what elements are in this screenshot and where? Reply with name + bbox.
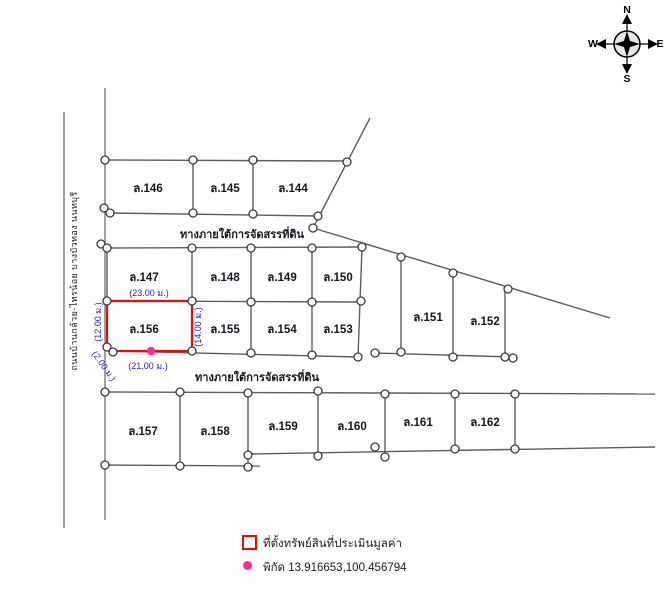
plot-label-150: ล.150 — [323, 269, 352, 287]
plot-label-154: ล.154 — [267, 321, 296, 339]
left-road-label: ถนนบ้านกล้วย-ไทรน้อย บางบัวทอง นนทบุรี — [67, 191, 81, 370]
dimension-left: (12.00 ม.) — [91, 302, 105, 341]
compass-east-label: E — [656, 38, 663, 50]
plot-label-161: ล.161 — [403, 414, 432, 432]
legend-subject-swatch — [242, 535, 257, 550]
plot-label-157: ล.157 — [128, 423, 157, 441]
plot-label-146: ล.146 — [133, 180, 162, 198]
dimension-right: (14.00 ม.) — [191, 307, 205, 346]
legend-coordinate-line: พิกัด 13.916653,100.456794 — [263, 559, 407, 577]
plot-label-148: ล.148 — [210, 269, 239, 287]
compass-rose-icon — [596, 14, 658, 74]
plot-label-159: ล.159 — [268, 418, 297, 436]
plot-label-151: ล.151 — [413, 309, 442, 327]
plot-label-144: ล.144 — [278, 180, 307, 198]
diagonal-boundary-upper — [313, 118, 370, 228]
plot-label-156-subject: ล.156 — [129, 321, 158, 339]
plot-label-155: ล.155 — [210, 321, 239, 339]
plot-label-145: ล.145 — [210, 180, 239, 198]
plot-label-147: ล.147 — [129, 269, 158, 287]
compass-south-label: S — [623, 73, 630, 85]
upper-road-label: ทางภายใต้การจัดสรรที่ดิน — [180, 225, 304, 243]
plot-label-160: ล.160 — [337, 418, 366, 436]
lower-road-label: ทางภายใต้การจัดสรรที่ดิน — [195, 368, 319, 386]
diagonal-boundary-lower — [313, 228, 610, 318]
plot-label-149: ล.149 — [267, 269, 296, 287]
coordinate-marker — [147, 347, 155, 355]
survey-map: ล.146 ล.145 ล.144 ล.147 ล.148 ล.149 ล.15… — [0, 0, 672, 591]
plot-label-153: ล.153 — [323, 321, 352, 339]
parcel-boundary-lines — [105, 118, 655, 467]
plot-label-162: ล.162 — [470, 414, 499, 432]
plot-label-158: ล.158 — [200, 423, 229, 441]
legend-coordinate-dot — [243, 561, 252, 570]
legend-subject-label: ที่ตั้งทรัพย์สินที่ประเมินมูลค่า — [263, 535, 402, 553]
plot-label-152: ล.152 — [470, 313, 499, 331]
dimension-top: (23.00 ม.) — [129, 286, 168, 300]
compass-north-label: N — [623, 4, 631, 16]
legend-coordinate-value: 13.916653,100.456794 — [288, 562, 406, 574]
dimension-bottom: (21.00 ม.) — [128, 359, 167, 373]
legend-coordinate-label: พิกัด — [263, 562, 285, 574]
compass-west-label: W — [588, 38, 598, 50]
corner-markers — [97, 156, 519, 471]
parcel-geometry — [0, 0, 672, 591]
